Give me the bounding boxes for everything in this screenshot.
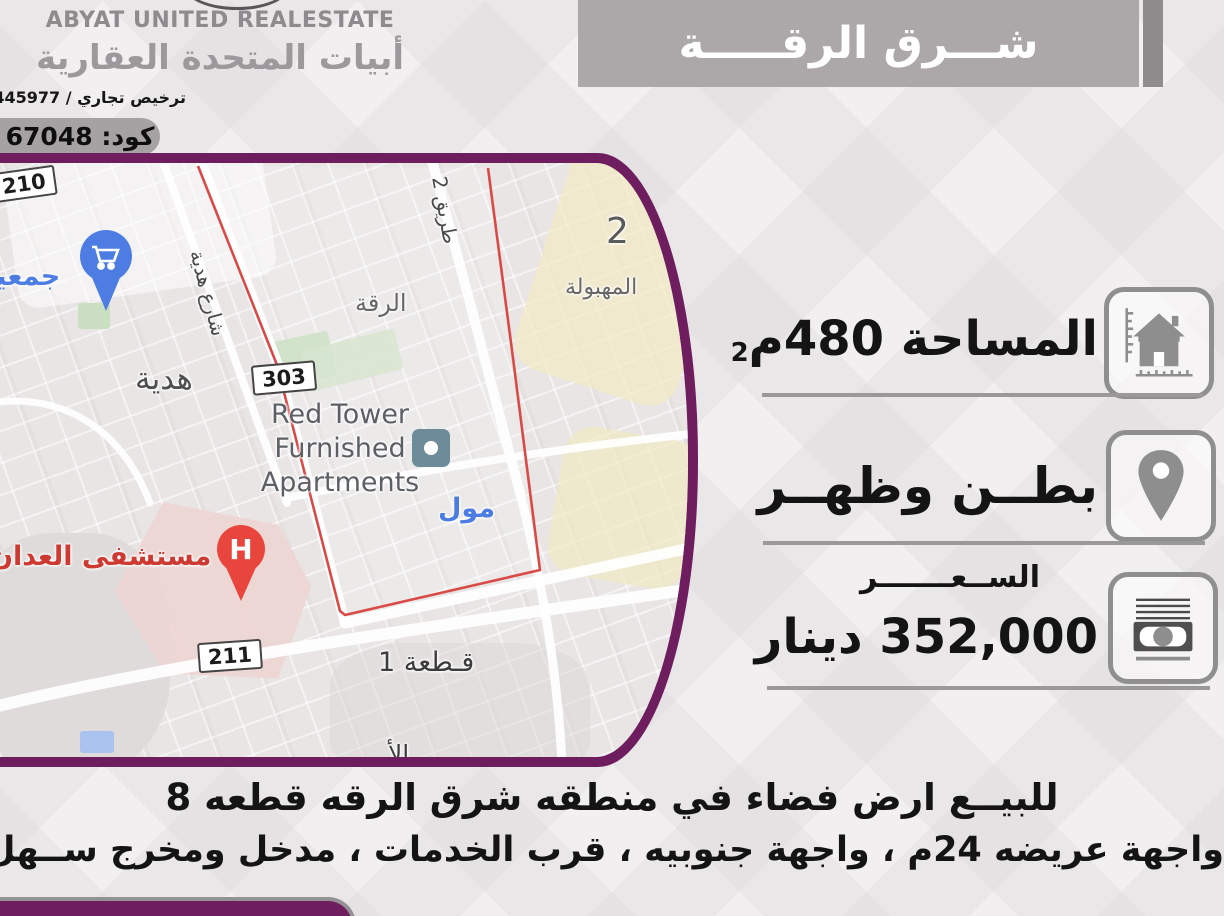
house-ruler-icon (1120, 303, 1198, 383)
map-label-hadiya: هدية (135, 361, 193, 397)
map-label-block-2: 2 (606, 211, 629, 252)
red-tower-line3: Apartments (230, 466, 450, 500)
price-icon-box (1108, 572, 1218, 684)
location-value: بطــن وظهــر (710, 446, 1098, 526)
map-label-red-tower: Red Tower Furnished Apartments (230, 398, 450, 500)
location-icon-box (1106, 430, 1216, 542)
hospital-pin-icon: H (215, 523, 267, 603)
area-text: المساحة 480م (749, 311, 1098, 367)
coop-store-pin-icon (78, 229, 134, 315)
banner-accent-bar (1143, 0, 1163, 87)
license-number: ترخيص تجاري / 445977 (6, 88, 186, 107)
map-label-mahboula: المهبولة (565, 275, 637, 300)
district-banner: شـــرق الرقـــــة (578, 0, 1139, 87)
map: 210 303 211 H جمعية شارع هدية (0, 163, 688, 757)
svg-text:H: H (229, 533, 252, 566)
description-line-1: للبيــع ارض فضاء في منطقه شرق الرقه قطعه… (0, 776, 1224, 819)
map-label-coop: جمعية (0, 261, 60, 292)
price-value: 352,000 دينار (710, 598, 1098, 676)
area-superscript: 2 (731, 338, 749, 372)
road-badge-303: 303 (251, 360, 317, 395)
red-tower-line2: Furnished (230, 432, 450, 466)
road-badge-211: 211 (197, 639, 263, 673)
divider (767, 686, 1210, 690)
divider (762, 393, 1203, 397)
flyer: ABYAT UNITED REALESTATE أبيات المتحدة ال… (0, 0, 1224, 916)
map-label-block-1: قـطعة 1 (378, 647, 474, 678)
location-pin-icon (1130, 446, 1192, 526)
map-canvas: 210 303 211 H جمعية شارع هدية (0, 163, 688, 757)
money-icon (1126, 590, 1200, 666)
area-value: المساحة 480م2 (710, 306, 1098, 372)
map-label-riqqa: الرقة (355, 289, 407, 317)
red-tower-line1: Red Tower (230, 398, 450, 432)
description-line-2: واجهة عريضه 24م ، واجهة جنوبيه ، قرب الخ… (0, 830, 1224, 870)
divider (763, 541, 1205, 545)
area-icon (1104, 287, 1214, 399)
price-label: الســعـــــــر (830, 560, 1070, 595)
bottom-accent-pill (0, 897, 356, 916)
map-label-hospital: مستشفى العدان (0, 541, 211, 572)
company-name-en: ABYAT UNITED REALESTATE (28, 8, 412, 33)
map-label-mall: مول (438, 493, 495, 524)
listing-code-badge: كود: 67048 (0, 118, 160, 155)
map-label-partial: الأ (388, 740, 409, 757)
company-name-ar: أبيات المتحدة العقارية (30, 38, 410, 78)
